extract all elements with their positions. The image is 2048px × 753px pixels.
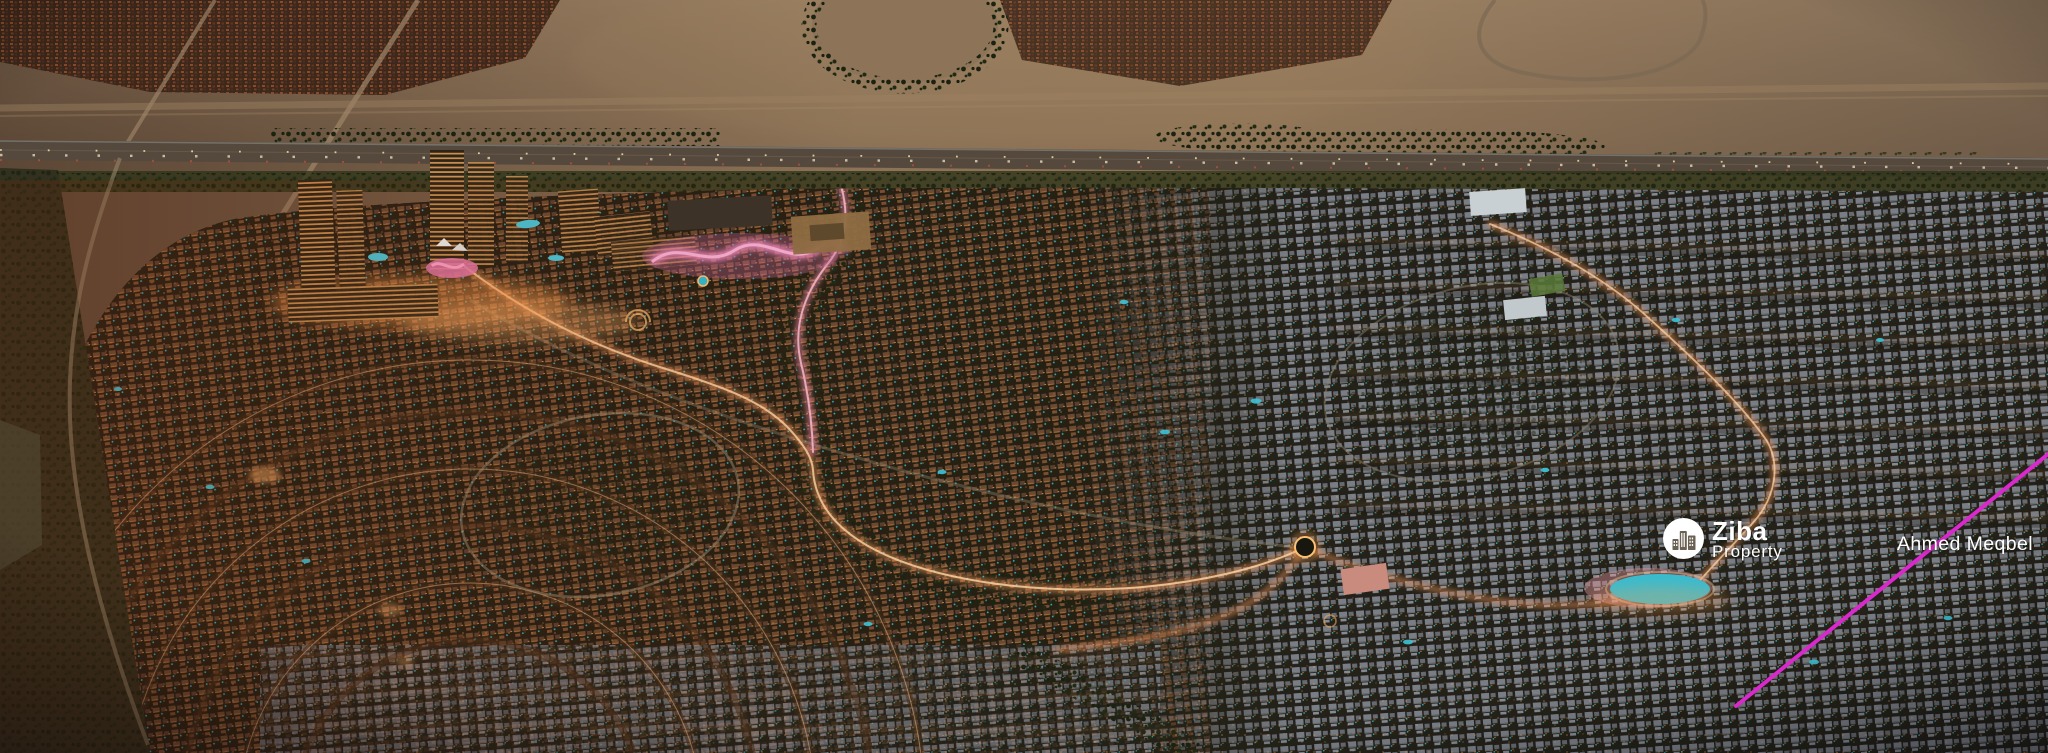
screenshot-root: Ziba Property Ahmed Meqbel AT HOME IS YO… (0, 0, 2048, 753)
buildings-icon (1672, 528, 1696, 550)
ziba-property-logo: Ziba Property (1663, 518, 1783, 561)
aerial-render (0, 0, 2048, 753)
brand-subtitle: Property (1712, 543, 1783, 561)
bottom-caption-partial: AT HOME IS YOUR (1251, 743, 1813, 753)
brand-name: Ziba (1712, 519, 1783, 543)
agent-name: Ahmed Meqbel (1897, 533, 2033, 556)
ziba-logo-text: Ziba Property (1712, 519, 1783, 561)
vignette (0, 0, 2048, 753)
ziba-logo-circle (1663, 518, 1704, 559)
